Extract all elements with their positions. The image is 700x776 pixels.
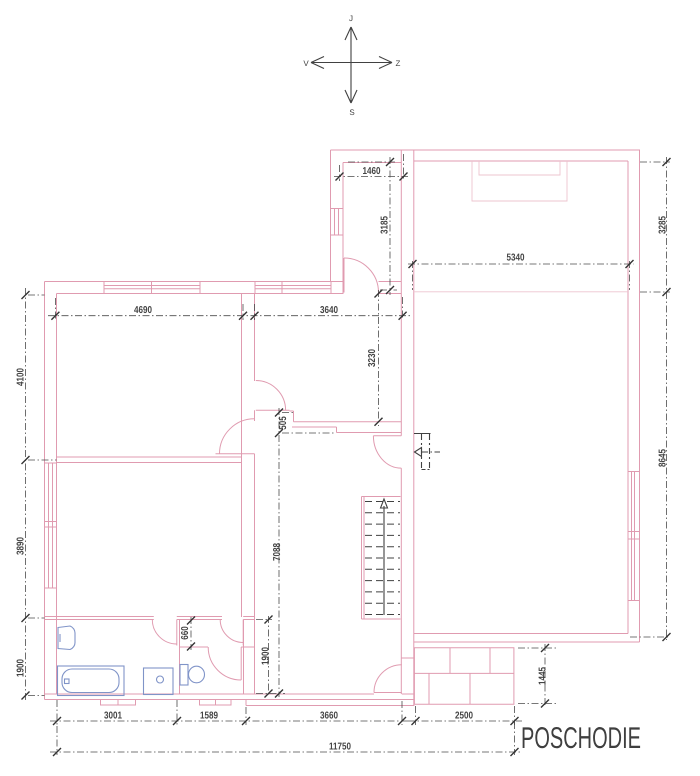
svg-text:5340: 5340 bbox=[507, 253, 525, 264]
svg-text:1900: 1900 bbox=[16, 659, 27, 677]
svg-text:POSCHODIE: POSCHODIE bbox=[521, 722, 641, 755]
svg-text:1589: 1589 bbox=[200, 711, 218, 722]
svg-text:3890: 3890 bbox=[16, 537, 27, 555]
svg-text:7088: 7088 bbox=[272, 543, 283, 561]
svg-text:3660: 3660 bbox=[320, 711, 338, 722]
svg-text:8645: 8645 bbox=[657, 449, 668, 467]
svg-text:1900: 1900 bbox=[261, 647, 272, 665]
svg-text:3640: 3640 bbox=[320, 305, 338, 316]
svg-text:505: 505 bbox=[278, 416, 289, 430]
svg-text:J: J bbox=[349, 14, 353, 23]
svg-text:S: S bbox=[349, 108, 354, 117]
svg-text:3285: 3285 bbox=[657, 216, 668, 234]
svg-text:2500: 2500 bbox=[455, 711, 473, 722]
svg-text:1445: 1445 bbox=[537, 667, 548, 685]
svg-text:1460: 1460 bbox=[363, 166, 381, 177]
svg-text:V: V bbox=[303, 59, 309, 68]
svg-text:4690: 4690 bbox=[134, 305, 152, 316]
svg-text:3230: 3230 bbox=[367, 349, 378, 367]
svg-text:4100: 4100 bbox=[16, 368, 27, 386]
svg-text:Z: Z bbox=[396, 59, 401, 68]
svg-text:660: 660 bbox=[180, 626, 191, 640]
svg-text:11750: 11750 bbox=[329, 742, 351, 753]
svg-text:3185: 3185 bbox=[380, 216, 391, 234]
svg-text:3001: 3001 bbox=[104, 711, 122, 722]
